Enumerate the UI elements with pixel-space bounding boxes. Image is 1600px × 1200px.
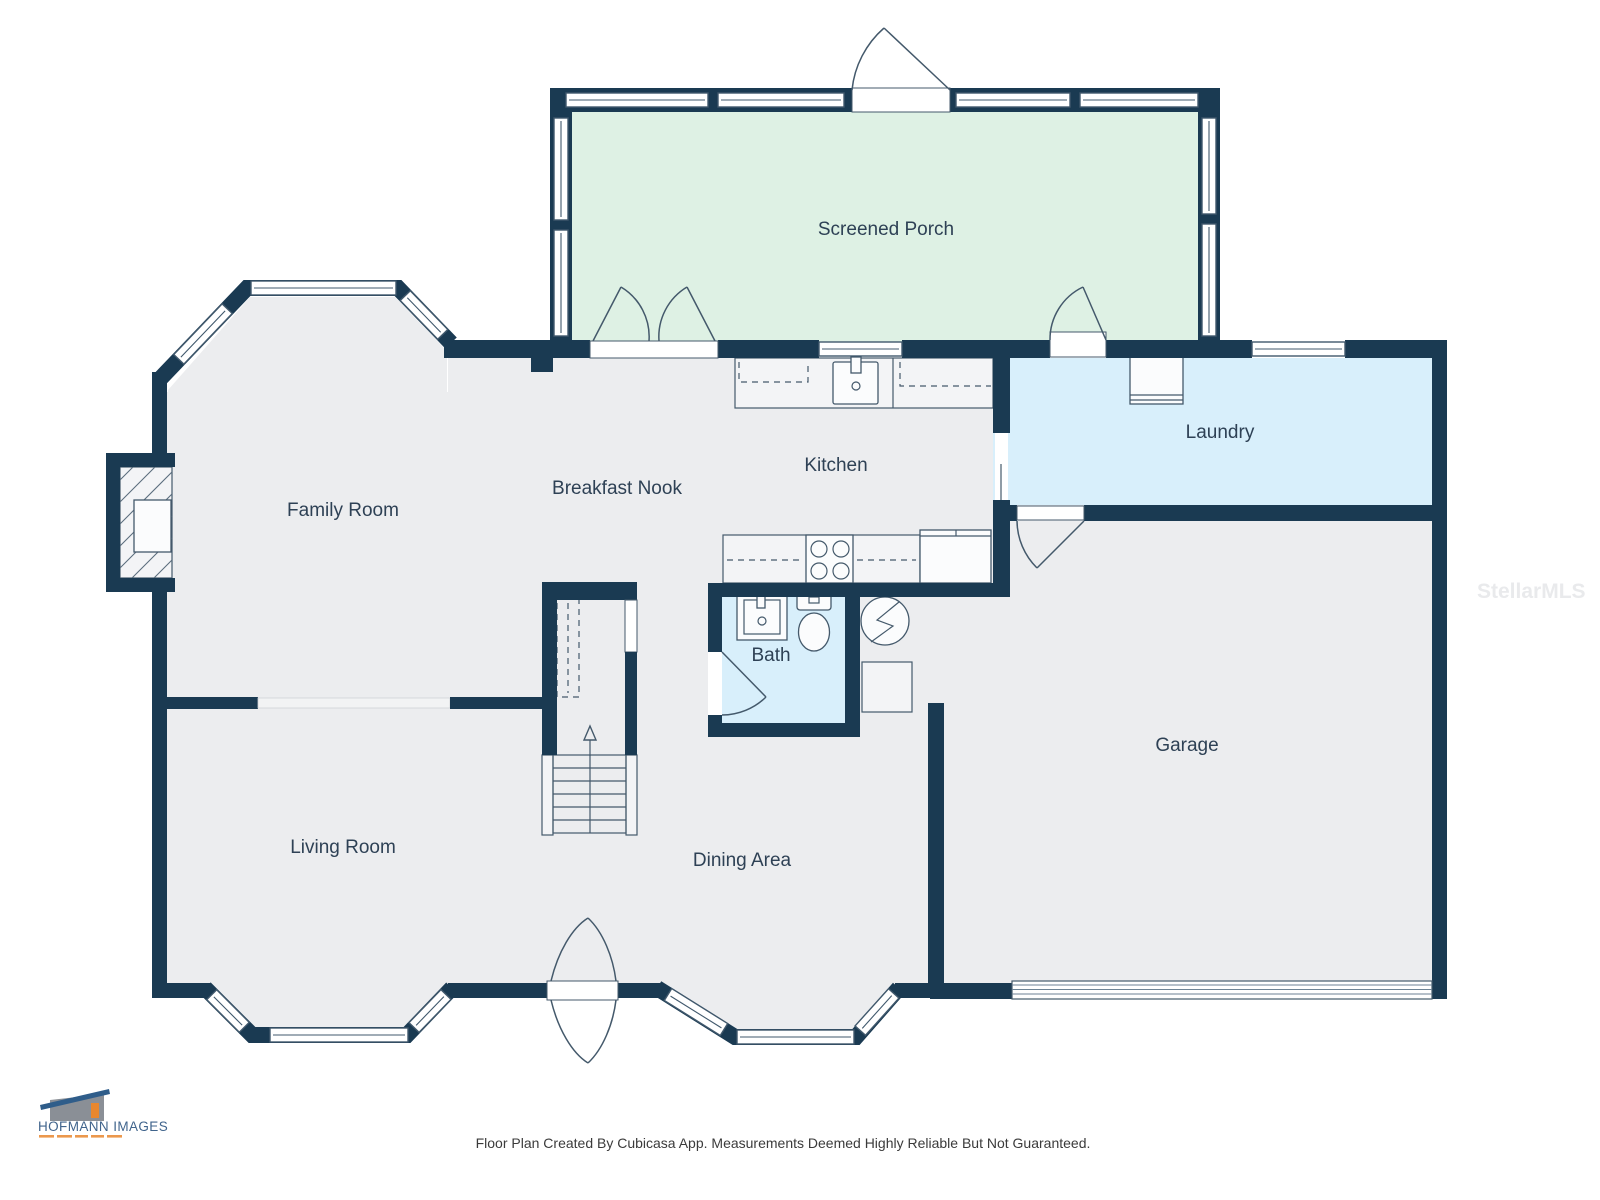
kitchen-laundry-opening — [995, 433, 1008, 500]
logo-brand-text: HOFMANN IMAGES — [38, 1119, 168, 1134]
kitchen-top-counter — [735, 357, 993, 408]
logo-tagline-marks — [39, 1135, 122, 1138]
floor-plan-drawing: Screened Porch Family Room Breakfast Noo… — [0, 0, 1600, 1200]
window — [956, 93, 1070, 107]
refrigerator-icon — [920, 530, 991, 583]
porch-exterior-door — [852, 28, 950, 112]
fireplace — [120, 467, 172, 578]
window — [737, 1030, 854, 1044]
window — [1202, 118, 1216, 214]
kitchen-sink — [833, 357, 878, 404]
window — [819, 342, 902, 356]
label-laundry: Laundry — [1186, 422, 1255, 443]
label-bath: Bath — [751, 645, 790, 666]
stove-icon — [806, 535, 853, 583]
washer-icon — [1130, 356, 1183, 404]
logo-house-icon — [40, 1089, 110, 1121]
window — [554, 118, 568, 220]
kitchen-lower-counter — [723, 530, 991, 583]
window — [554, 230, 568, 336]
window — [1252, 342, 1345, 356]
bath-sink-icon — [737, 592, 787, 640]
label-kitchen: Kitchen — [804, 455, 867, 476]
stellar-mls-watermark: StellarMLS — [1477, 580, 1586, 603]
window — [270, 1028, 408, 1042]
label-breakfast-nook: Breakfast Nook — [552, 478, 682, 499]
garage-door — [1012, 981, 1432, 999]
window — [1080, 93, 1198, 107]
label-living-room: Living Room — [290, 837, 396, 858]
family-bay-floor — [168, 297, 447, 392]
floor-plan-page: Screened Porch Family Room Breakfast Noo… — [0, 0, 1600, 1200]
label-garage: Garage — [1155, 735, 1218, 756]
window — [718, 93, 844, 107]
window — [251, 281, 396, 295]
window — [566, 93, 708, 107]
disclaimer-text: Floor Plan Created By Cubicasa App. Meas… — [476, 1135, 1091, 1151]
hofmann-images-logo: HOFMANN IMAGES — [38, 1089, 168, 1138]
toilet-icon — [797, 592, 831, 651]
label-screened-porch: Screened Porch — [818, 219, 954, 240]
label-family-room: Family Room — [287, 500, 399, 521]
window — [1202, 224, 1216, 336]
label-dining-area: Dining Area — [693, 850, 792, 871]
